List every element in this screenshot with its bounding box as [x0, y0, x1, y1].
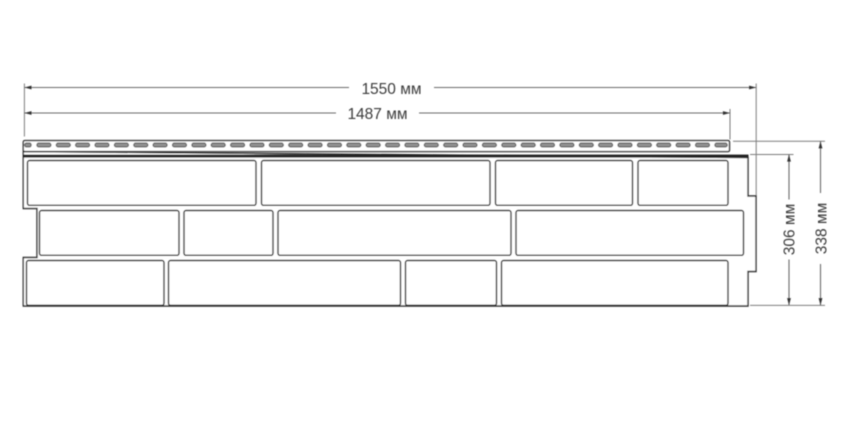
svg-text:1487 мм: 1487 мм — [347, 106, 407, 123]
svg-text:338 мм: 338 мм — [814, 203, 831, 254]
svg-text:306 мм: 306 мм — [782, 204, 799, 255]
svg-text:1550 мм: 1550 мм — [361, 81, 421, 98]
